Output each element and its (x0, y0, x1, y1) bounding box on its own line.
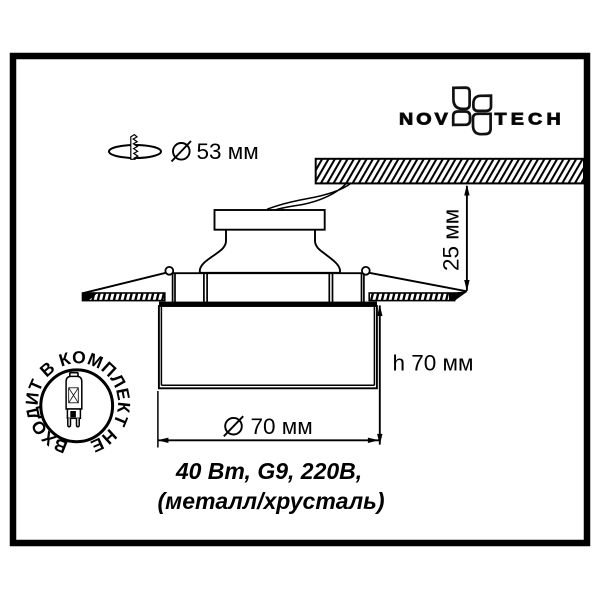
svg-text:25 мм: 25 мм (439, 209, 464, 271)
svg-text:h 70 мм: h 70 мм (393, 351, 474, 376)
svg-text:NOV: NOV (399, 109, 451, 128)
svg-text:53 мм: 53 мм (197, 139, 259, 164)
svg-text:70 мм: 70 мм (251, 414, 313, 439)
svg-text:TECH: TECH (495, 109, 565, 128)
svg-text:(металл/хрусталь): (металл/хрусталь) (158, 488, 385, 514)
svg-text:40 Вт, G9, 220В,: 40 Вт, G9, 220В, (175, 458, 362, 484)
